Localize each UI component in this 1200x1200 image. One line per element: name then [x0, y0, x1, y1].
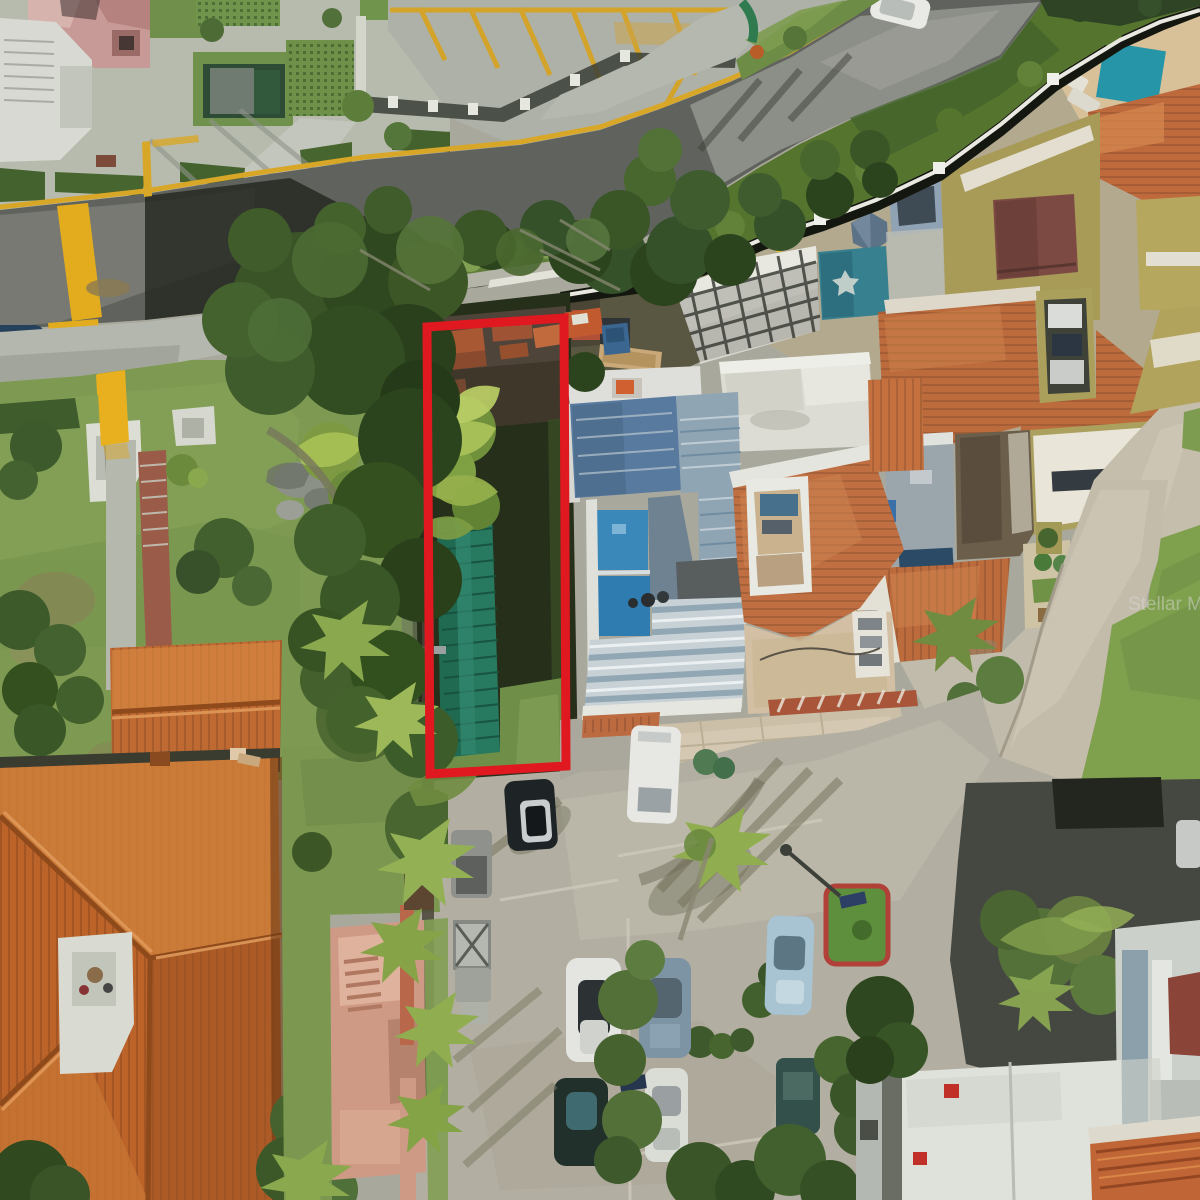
svg-text:Stellar MLS: Stellar MLS [1128, 594, 1200, 615]
